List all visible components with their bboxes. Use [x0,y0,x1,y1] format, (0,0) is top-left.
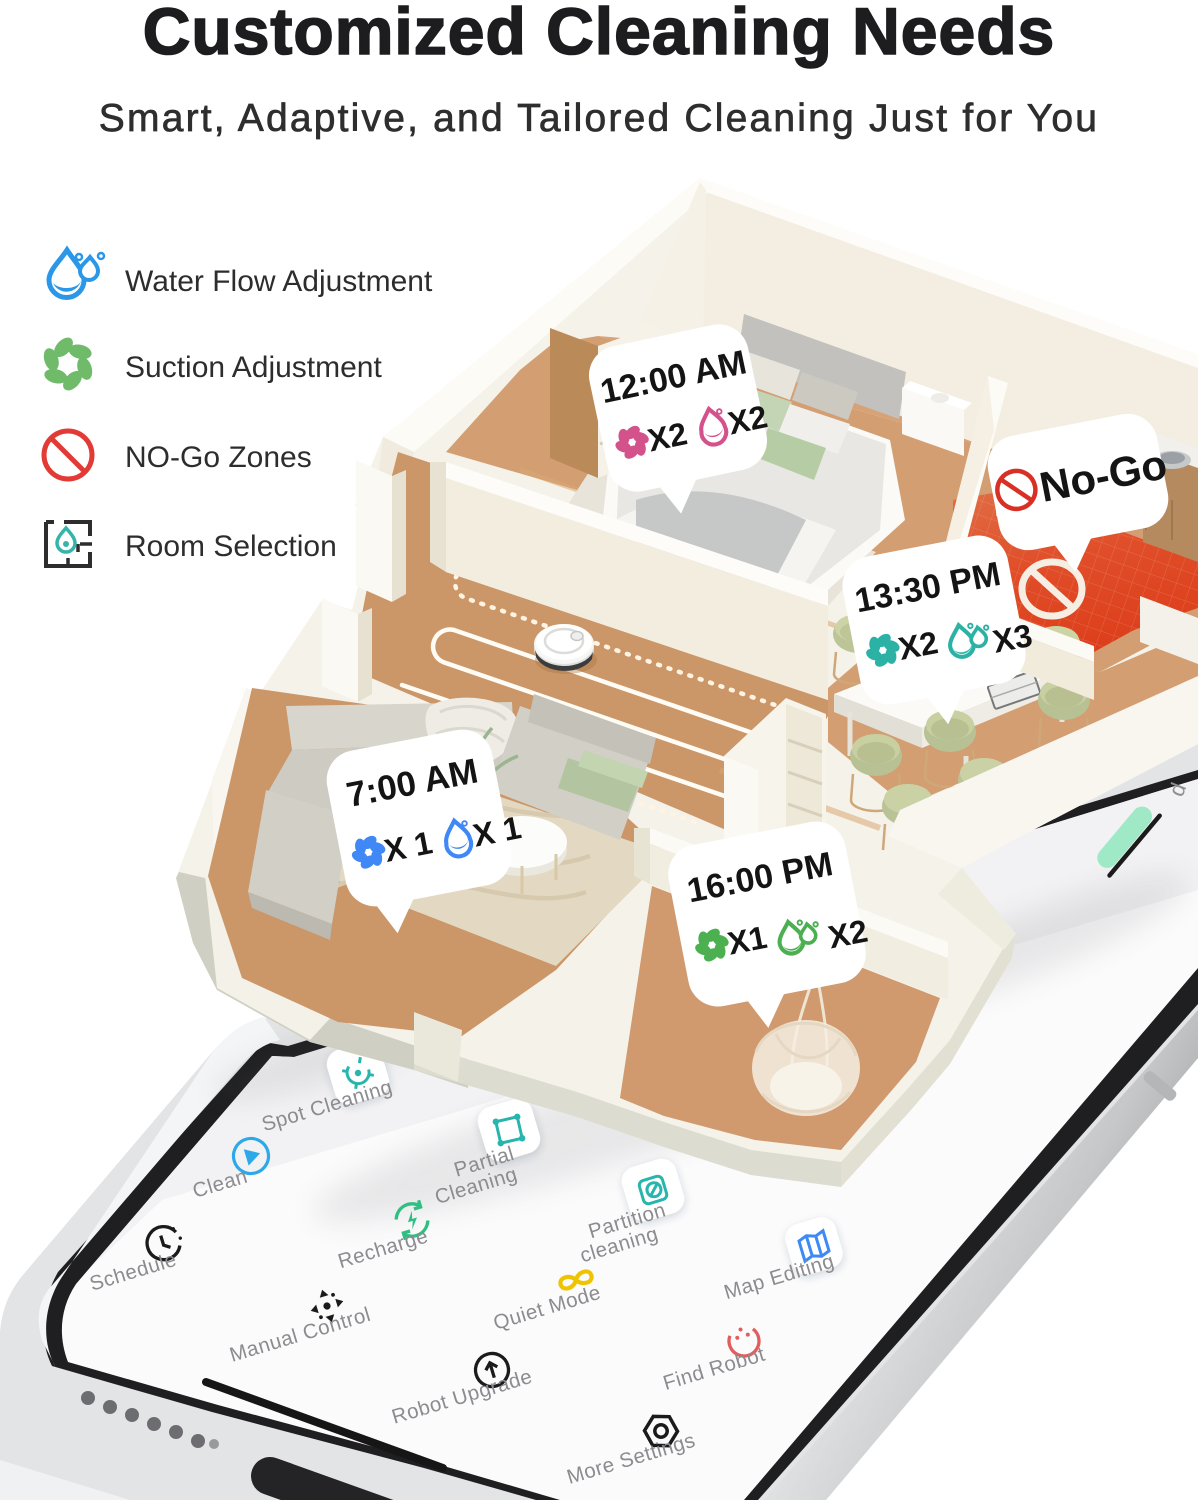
svg-text:X1: X1 [725,919,770,962]
svg-text:Suction Adjustment: Suction Adjustment [125,351,382,384]
svg-text:NO-Go Zones: NO-Go Zones [125,441,312,474]
svg-text:Water Flow Adjustment: Water Flow Adjustment [125,265,433,298]
svg-text:X2: X2 [825,913,870,956]
svg-text:Smart, Adaptive, and Tailored: Smart, Adaptive, and Tailored Cleaning J… [99,97,1099,140]
svg-text:Room Selection: Room Selection [125,530,337,563]
svg-text:X3: X3 [990,617,1035,660]
svg-text:X2: X2 [895,624,940,667]
svg-text:Customized Cleaning Needs: Customized Cleaning Needs [143,0,1056,68]
